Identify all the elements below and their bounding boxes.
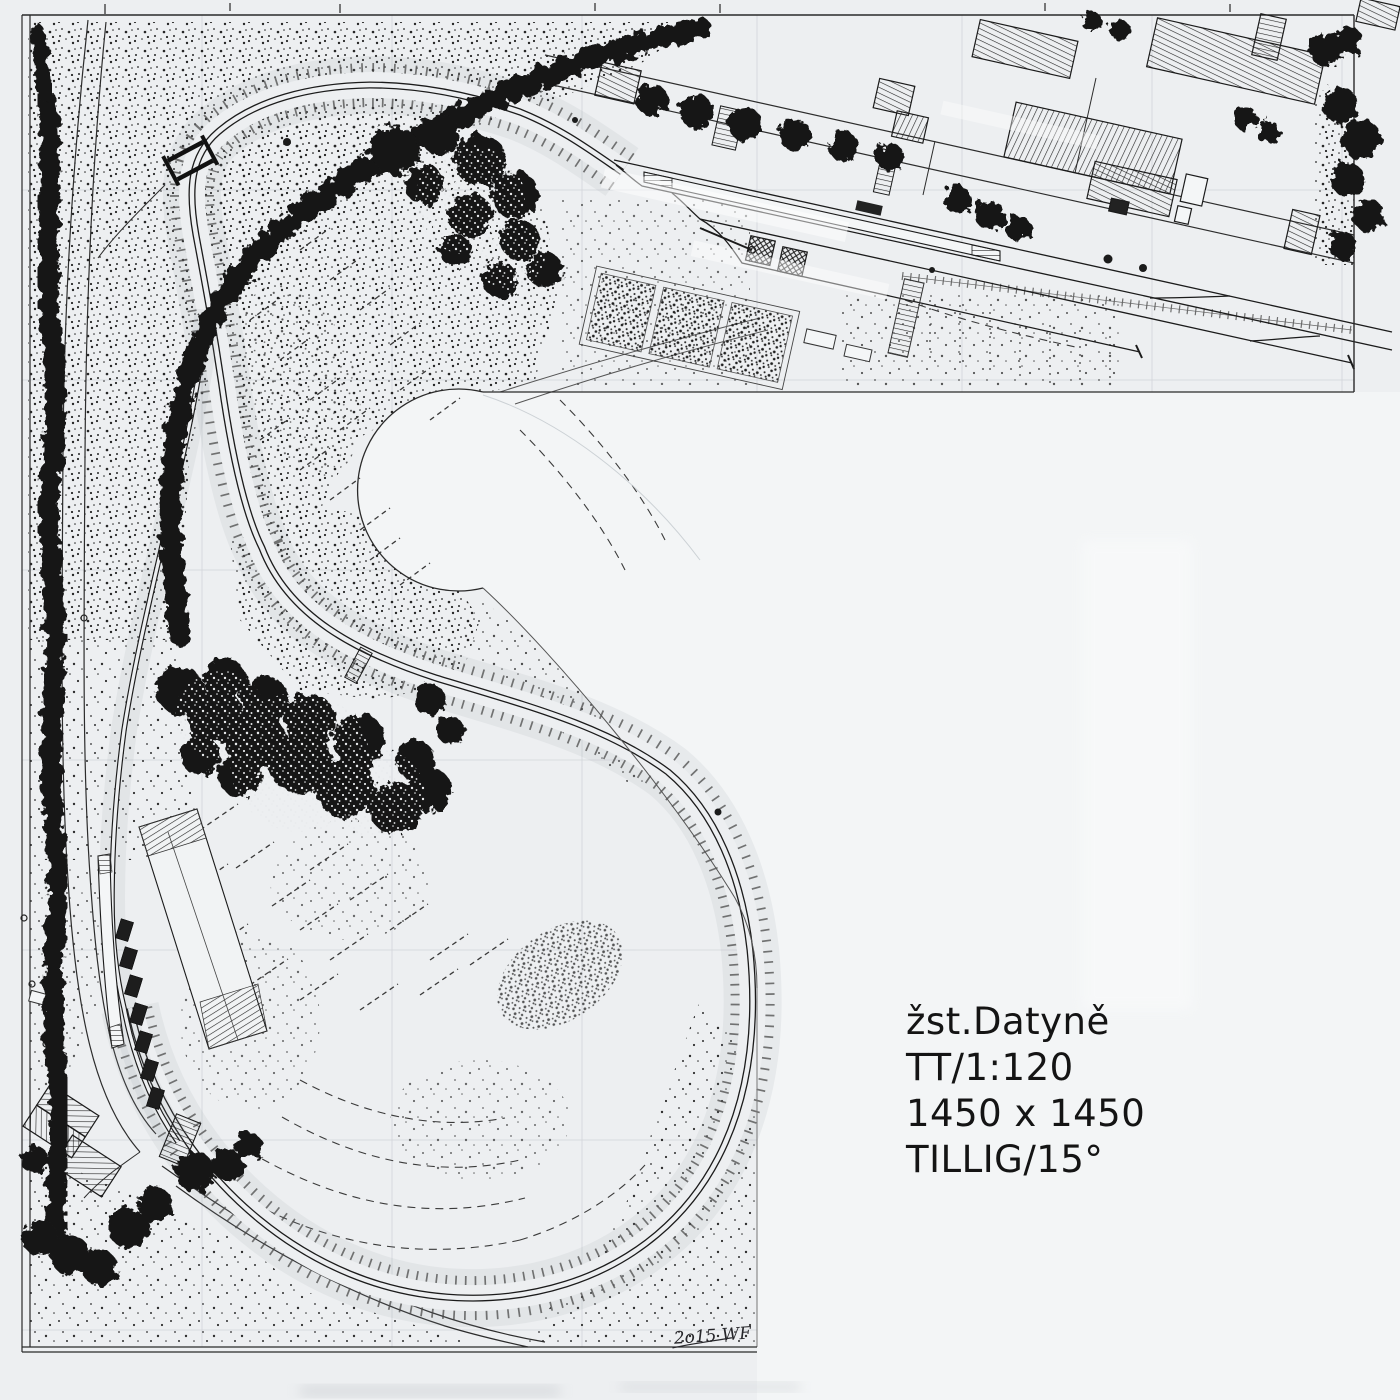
- shed: [1174, 206, 1191, 225]
- layout-plan-drawing: žst.Datyně TT/1:120 1450 x 1450 TILLIG/1…: [0, 0, 1400, 1400]
- blank-paper-area: [757, 392, 1400, 1400]
- title-line-2: TT/1:120: [905, 1046, 1074, 1089]
- title-line-1: žst.Datyně: [906, 1000, 1110, 1043]
- title-line-4: TILLIG/15°: [905, 1138, 1103, 1181]
- title-line-3: 1450 x 1450: [906, 1092, 1145, 1135]
- layout-plan-page: žst.Datyně TT/1:120 1450 x 1450 TILLIG/1…: [0, 0, 1400, 1400]
